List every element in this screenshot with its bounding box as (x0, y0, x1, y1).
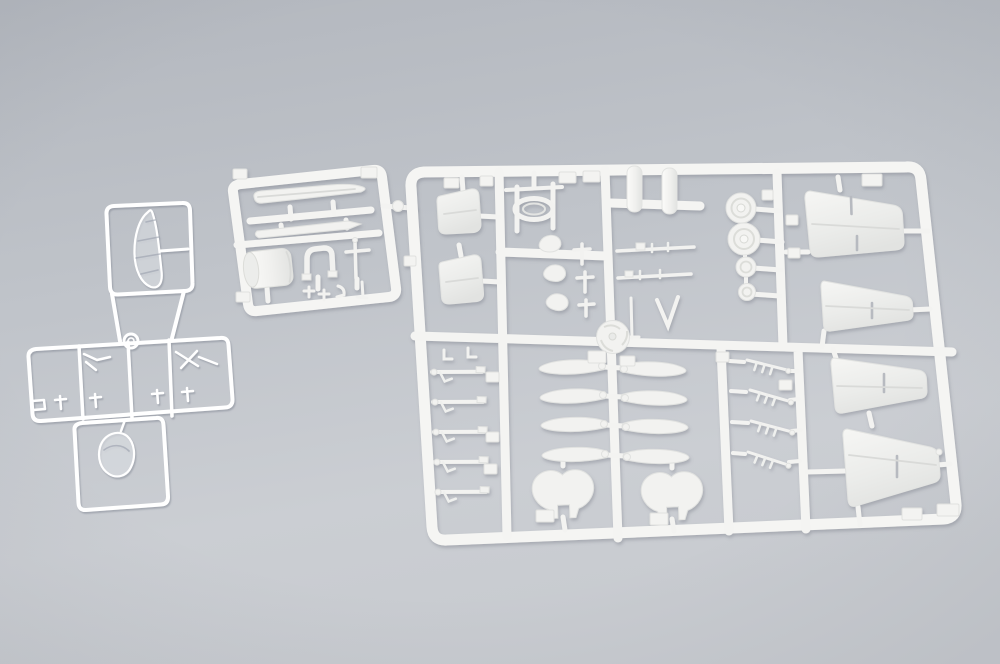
canopy-gate-stub (160, 249, 188, 251)
drop-tank (627, 166, 642, 212)
cowl-arch-foot (302, 274, 311, 280)
wheel (739, 284, 756, 301)
product-photo: Overhead photo of plastic aircraft model… (0, 0, 1000, 664)
sprue-photo-svg: Overhead photo of plastic aircraft model… (0, 0, 1000, 664)
wheel (726, 193, 756, 223)
gate-number-tag (361, 167, 377, 178)
gate-number-tag (236, 292, 250, 302)
engine-cowling-part (242, 248, 294, 290)
gate-number-tag (233, 169, 247, 179)
sprue-connector-knob (393, 201, 404, 212)
drop-tank (662, 168, 677, 214)
wing-pin (936, 449, 942, 455)
wheel (728, 223, 760, 255)
cowl-arch-foot (328, 271, 337, 277)
propeller-spinner-part (597, 321, 630, 354)
cross-brace-knob (353, 238, 358, 243)
wheel (736, 257, 756, 277)
windscreen-part (99, 433, 134, 477)
